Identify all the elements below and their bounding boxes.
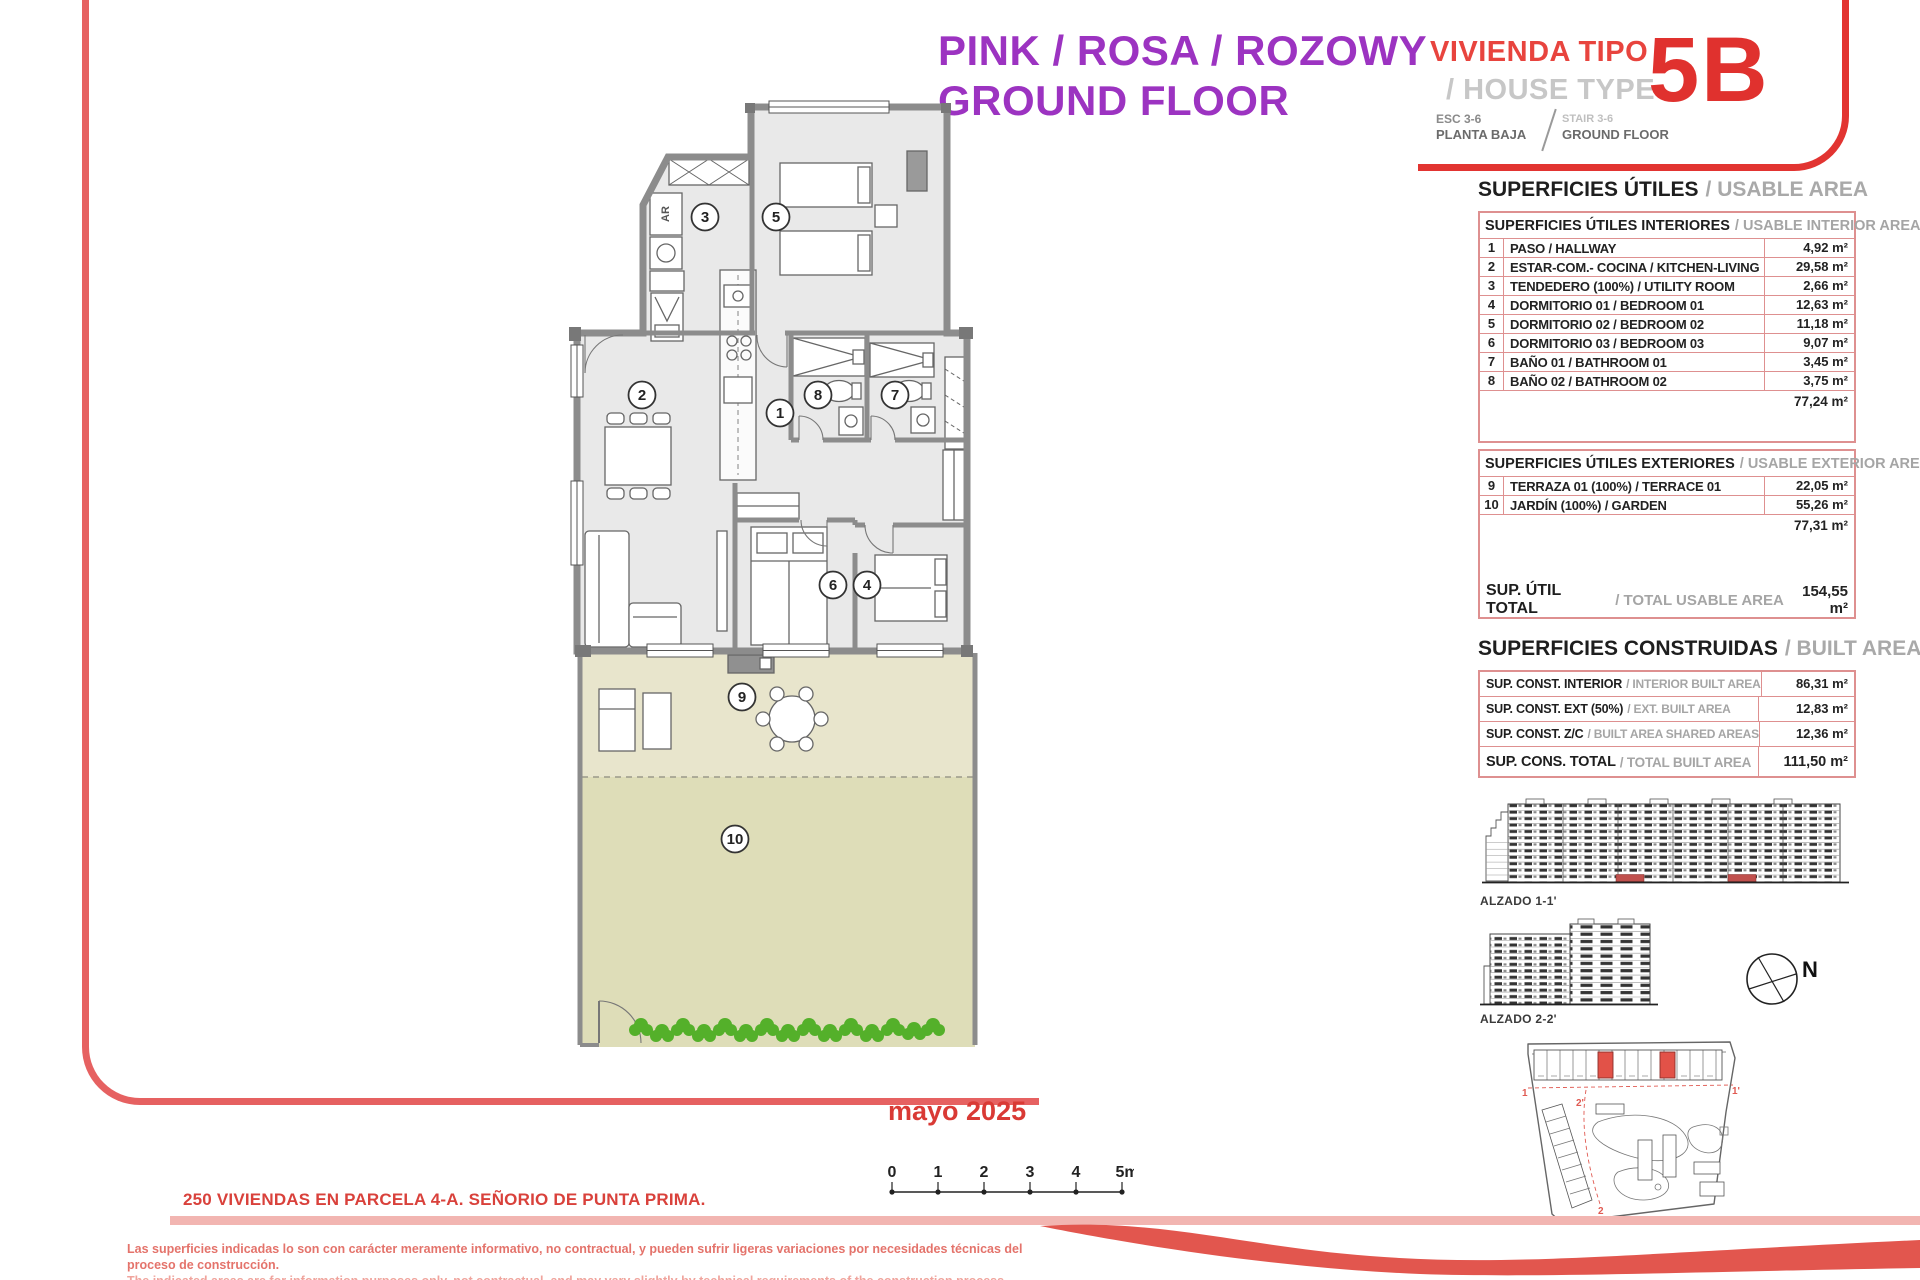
built-area-table: SUP. CONST. INTERIOR/ INTERIOR BUILT ARE… [1478, 670, 1856, 778]
row-num: 8 [1480, 372, 1504, 390]
project-title: 250 VIVIENDAS EN PARCELA 4-A. SEÑORIO DE… [183, 1190, 706, 1210]
elevation-1-label: ALZADO 1-1' [1480, 894, 1557, 908]
table-row: SUP. CONST. EXT (50%)/ EXT. BUILT AREA12… [1480, 697, 1854, 722]
compass-north-label: N [1802, 957, 1818, 982]
usable-area-title-en: / USABLE AREA [1706, 178, 1869, 201]
usable-total-label-es: SUP. ÚTIL TOTAL [1486, 582, 1609, 618]
house-type-label-es: VIVIENDA TIPO [1430, 36, 1648, 69]
stair-block-es: ESC 3-6 PLANTA BAJA [1436, 112, 1526, 142]
row-label: ESTAR-COM.- COCINA / KITCHEN-LIVING [1504, 260, 1764, 275]
room-circle-9: 9 [729, 684, 756, 711]
row-label: JARDÍN (100%) / GARDEN [1504, 498, 1764, 513]
disclaimer-es: Las superficies indicadas lo son con car… [127, 1241, 1067, 1273]
row-value: 86,31 m² [1761, 672, 1854, 696]
exterior-header-es: SUPERFICIES ÚTILES EXTERIORES [1485, 456, 1735, 472]
table-row: 4DORMITORIO 01 / BEDROOM 0112,63 m² [1480, 296, 1854, 315]
interior-header-es: SUPERFICIES ÚTILES INTERIORES [1485, 218, 1730, 234]
row-label-es: SUP. CONST. Z/C [1480, 727, 1583, 741]
table-row: 2ESTAR-COM.- COCINA / KITCHEN-LIVING29,5… [1480, 258, 1854, 277]
row-value: 55,26 m² [1764, 496, 1854, 514]
room-circle-2: 2 [629, 382, 656, 409]
row-value: 4,92 m² [1764, 239, 1854, 257]
highlighted-unit [1660, 1052, 1675, 1078]
row-label-es: SUP. CONST. EXT (50%) [1480, 702, 1623, 716]
row-value: 9,07 m² [1764, 334, 1854, 352]
elevation-2-drawing [1478, 916, 1663, 1012]
row-num: 9 [1480, 477, 1504, 495]
table-row: 9TERRAZA 01 (100%) / TERRACE 0122,05 m² [1480, 477, 1854, 496]
built-area-title: SUPERFICIES CONSTRUIDAS/ BUILT AREA [1478, 637, 1856, 661]
built-total-label-en: / TOTAL BUILT AREA [1620, 755, 1758, 770]
row-num: 2 [1480, 258, 1504, 276]
row-num: 5 [1480, 315, 1504, 333]
row-num: 1 [1480, 239, 1504, 257]
room-circle-6: 6 [820, 572, 847, 599]
footer-swoosh [1040, 1212, 1920, 1280]
row-num: 7 [1480, 353, 1504, 371]
row-value: 12,83 m² [1758, 697, 1854, 721]
site-building-strip [1534, 1050, 1722, 1080]
svg-text:1: 1 [934, 1164, 943, 1181]
room-circle-10: 10 [722, 826, 749, 853]
built-total-row: SUP. CONS. TOTAL/ TOTAL BUILT AREA111,50… [1480, 747, 1854, 777]
row-value: 11,18 m² [1764, 315, 1854, 333]
elevation-2-label: ALZADO 2-2' [1480, 1012, 1557, 1026]
svg-text:4: 4 [863, 577, 872, 594]
svg-text:10: 10 [727, 831, 744, 848]
room-circle-4: 4 [854, 572, 881, 599]
interior-subtotal: 77,24 m² [1480, 391, 1854, 413]
scale-labels: 0 1 2 3 4 5m [888, 1164, 1134, 1181]
row-label: BAÑO 01 / BATHROOM 01 [1504, 355, 1764, 370]
highlighted-unit [1598, 1052, 1613, 1078]
svg-text:5m: 5m [1115, 1164, 1134, 1181]
table-spacer [1480, 413, 1854, 441]
row-label: PASO / HALLWAY [1504, 241, 1764, 256]
row-label: TERRAZA 01 (100%) / TERRACE 01 [1504, 479, 1764, 494]
table-row: SUP. CONST. Z/C/ BUILT AREA SHARED AREAS… [1480, 722, 1854, 747]
built-total-label-es: SUP. CONS. TOTAL [1480, 754, 1616, 770]
compass: N [1742, 945, 1837, 1013]
table-row: 6DORMITORIO 03 / BEDROOM 039,07 m² [1480, 334, 1854, 353]
svg-text:3: 3 [701, 209, 709, 226]
site-landscaping [1542, 1104, 1728, 1208]
stair-en-line2: GROUND FLOOR [1562, 127, 1669, 142]
row-value: 22,05 m² [1764, 477, 1854, 495]
svg-text:8: 8 [814, 387, 822, 404]
house-type-label-en: / HOUSE TYPE [1446, 74, 1655, 107]
compass-circle [1747, 954, 1797, 1004]
exterior-subtotal: 77,31 m² [1480, 515, 1854, 537]
exterior-header-en: / USABLE EXTERIOR AREA [1740, 456, 1920, 472]
usable-total-label-en: / TOTAL USABLE AREA [1615, 592, 1784, 609]
row-label: DORMITORIO 02 / BEDROOM 02 [1504, 317, 1764, 332]
row-value: 3,45 m² [1764, 353, 1854, 371]
utility-appliance-label: AR [660, 206, 672, 222]
svg-text:2: 2 [638, 387, 646, 404]
disclaimer-en: The indicated areas are for information … [127, 1273, 1087, 1280]
row-value: 2,66 m² [1764, 277, 1854, 295]
usable-total-value: 154,55 m² [1784, 583, 1854, 617]
svg-text:2': 2' [1576, 1098, 1584, 1109]
stair-es-line1: ESC 3-6 [1436, 112, 1526, 127]
room-circle-1: 1 [767, 400, 794, 427]
svg-text:6: 6 [829, 577, 837, 594]
area-tables-panel: SUPERFICIES ÚTILES/ USABLE AREA SUPERFIC… [1478, 178, 1856, 778]
svg-text:5: 5 [772, 209, 780, 226]
row-label: DORMITORIO 03 / BEDROOM 03 [1504, 336, 1764, 351]
highlighted-unit [1728, 875, 1756, 882]
table-row: 5DORMITORIO 02 / BEDROOM 0211,18 m² [1480, 315, 1854, 334]
svg-text:0: 0 [888, 1164, 897, 1181]
row-num: 3 [1480, 277, 1504, 295]
usable-interior-table: SUPERFICIES ÚTILES INTERIORES / USABLE I… [1478, 211, 1856, 443]
table-row: SUP. CONST. INTERIOR/ INTERIOR BUILT ARE… [1480, 672, 1854, 697]
built-area-title-es: SUPERFICIES CONSTRUIDAS [1478, 637, 1778, 660]
exterior-table-header: SUPERFICIES ÚTILES EXTERIORES / USABLE E… [1480, 451, 1854, 477]
svg-text:2: 2 [980, 1164, 989, 1181]
row-label-en: / BUILT AREA SHARED AREAS [1587, 727, 1758, 741]
usable-area-title-es: SUPERFICIES ÚTILES [1478, 178, 1699, 201]
built-area-title-en: / BUILT AREA [1785, 637, 1920, 660]
plan-sheet: PINK / ROSA / ROZOWY GROUND FLOOR VIVIEN… [0, 0, 1920, 1280]
row-value: 12,36 m² [1759, 722, 1854, 746]
table-row: 8BAÑO 02 / BATHROOM 023,75 m² [1480, 372, 1854, 391]
row-label-en: / EXT. BUILT AREA [1627, 702, 1758, 716]
floor-plan: AR 1 2 3 4 5 6 7 8 9 10 [555, 95, 1025, 1070]
row-label: DORMITORIO 01 / BEDROOM 01 [1504, 298, 1764, 313]
interior-header-en: / USABLE INTERIOR AREA [1735, 218, 1920, 234]
scale-bar: 0 1 2 3 4 5m [884, 1162, 1134, 1202]
table-row: 7BAÑO 01 / BATHROOM 013,45 m² [1480, 353, 1854, 372]
usable-area-title: SUPERFICIES ÚTILES/ USABLE AREA [1478, 178, 1856, 202]
row-value: 12,63 m² [1764, 296, 1854, 314]
built-total-value: 111,50 m² [1758, 747, 1854, 777]
svg-text:1: 1 [1522, 1088, 1528, 1099]
table-row: 1PASO / HALLWAY4,92 m² [1480, 239, 1854, 258]
row-num: 6 [1480, 334, 1504, 352]
svg-text:4: 4 [1072, 1164, 1081, 1181]
svg-text:9: 9 [738, 689, 746, 706]
row-label-es: SUP. CONST. INTERIOR [1480, 677, 1622, 691]
page-title-line1: PINK / ROSA / ROZOWY [938, 26, 1427, 76]
room-circle-8: 8 [805, 382, 832, 409]
svg-text:1': 1' [1732, 1086, 1740, 1097]
table-spacer [1480, 537, 1854, 583]
room-circle-7: 7 [882, 382, 909, 409]
stair-es-line2: PLANTA BAJA [1436, 127, 1526, 142]
svg-text:1: 1 [776, 405, 784, 422]
row-num: 10 [1480, 496, 1504, 514]
usable-exterior-table: SUPERFICIES ÚTILES EXTERIORES / USABLE E… [1478, 449, 1856, 619]
date-label: mayo 2025 [888, 1096, 1026, 1127]
elevation-1-drawing [1478, 796, 1853, 892]
usable-total-row: SUP. ÚTIL TOTAL / TOTAL USABLE AREA 154,… [1480, 583, 1854, 617]
house-type-code: 5B [1648, 18, 1770, 123]
row-num: 4 [1480, 296, 1504, 314]
row-label: TENDEDERO (100%) / UTILITY ROOM [1504, 279, 1764, 294]
table-row: 10JARDÍN (100%) / GARDEN55,26 m² [1480, 496, 1854, 515]
highlighted-unit [1616, 875, 1644, 882]
row-label: BAÑO 02 / BATHROOM 02 [1504, 374, 1764, 389]
svg-text:3: 3 [1026, 1164, 1035, 1181]
table-row: 3TENDEDERO (100%) / UTILITY ROOM2,66 m² [1480, 277, 1854, 296]
interior-table-header: SUPERFICIES ÚTILES INTERIORES / USABLE I… [1480, 213, 1854, 239]
row-label-en: / INTERIOR BUILT AREA [1626, 677, 1760, 691]
room-circle-3: 3 [692, 204, 719, 231]
row-value: 3,75 m² [1764, 372, 1854, 390]
svg-text:7: 7 [891, 387, 899, 404]
row-value: 29,58 m² [1764, 258, 1854, 276]
room-circle-5: 5 [763, 204, 790, 231]
